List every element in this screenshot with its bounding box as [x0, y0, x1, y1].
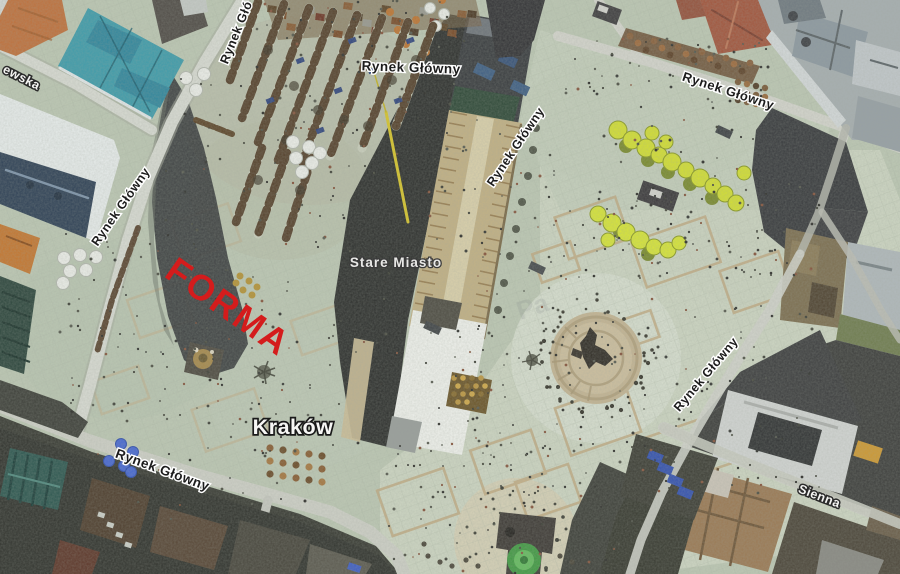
svg-text:Stare Miasto: Stare Miasto	[350, 255, 442, 270]
svg-text:Kraków: Kraków	[253, 415, 334, 439]
